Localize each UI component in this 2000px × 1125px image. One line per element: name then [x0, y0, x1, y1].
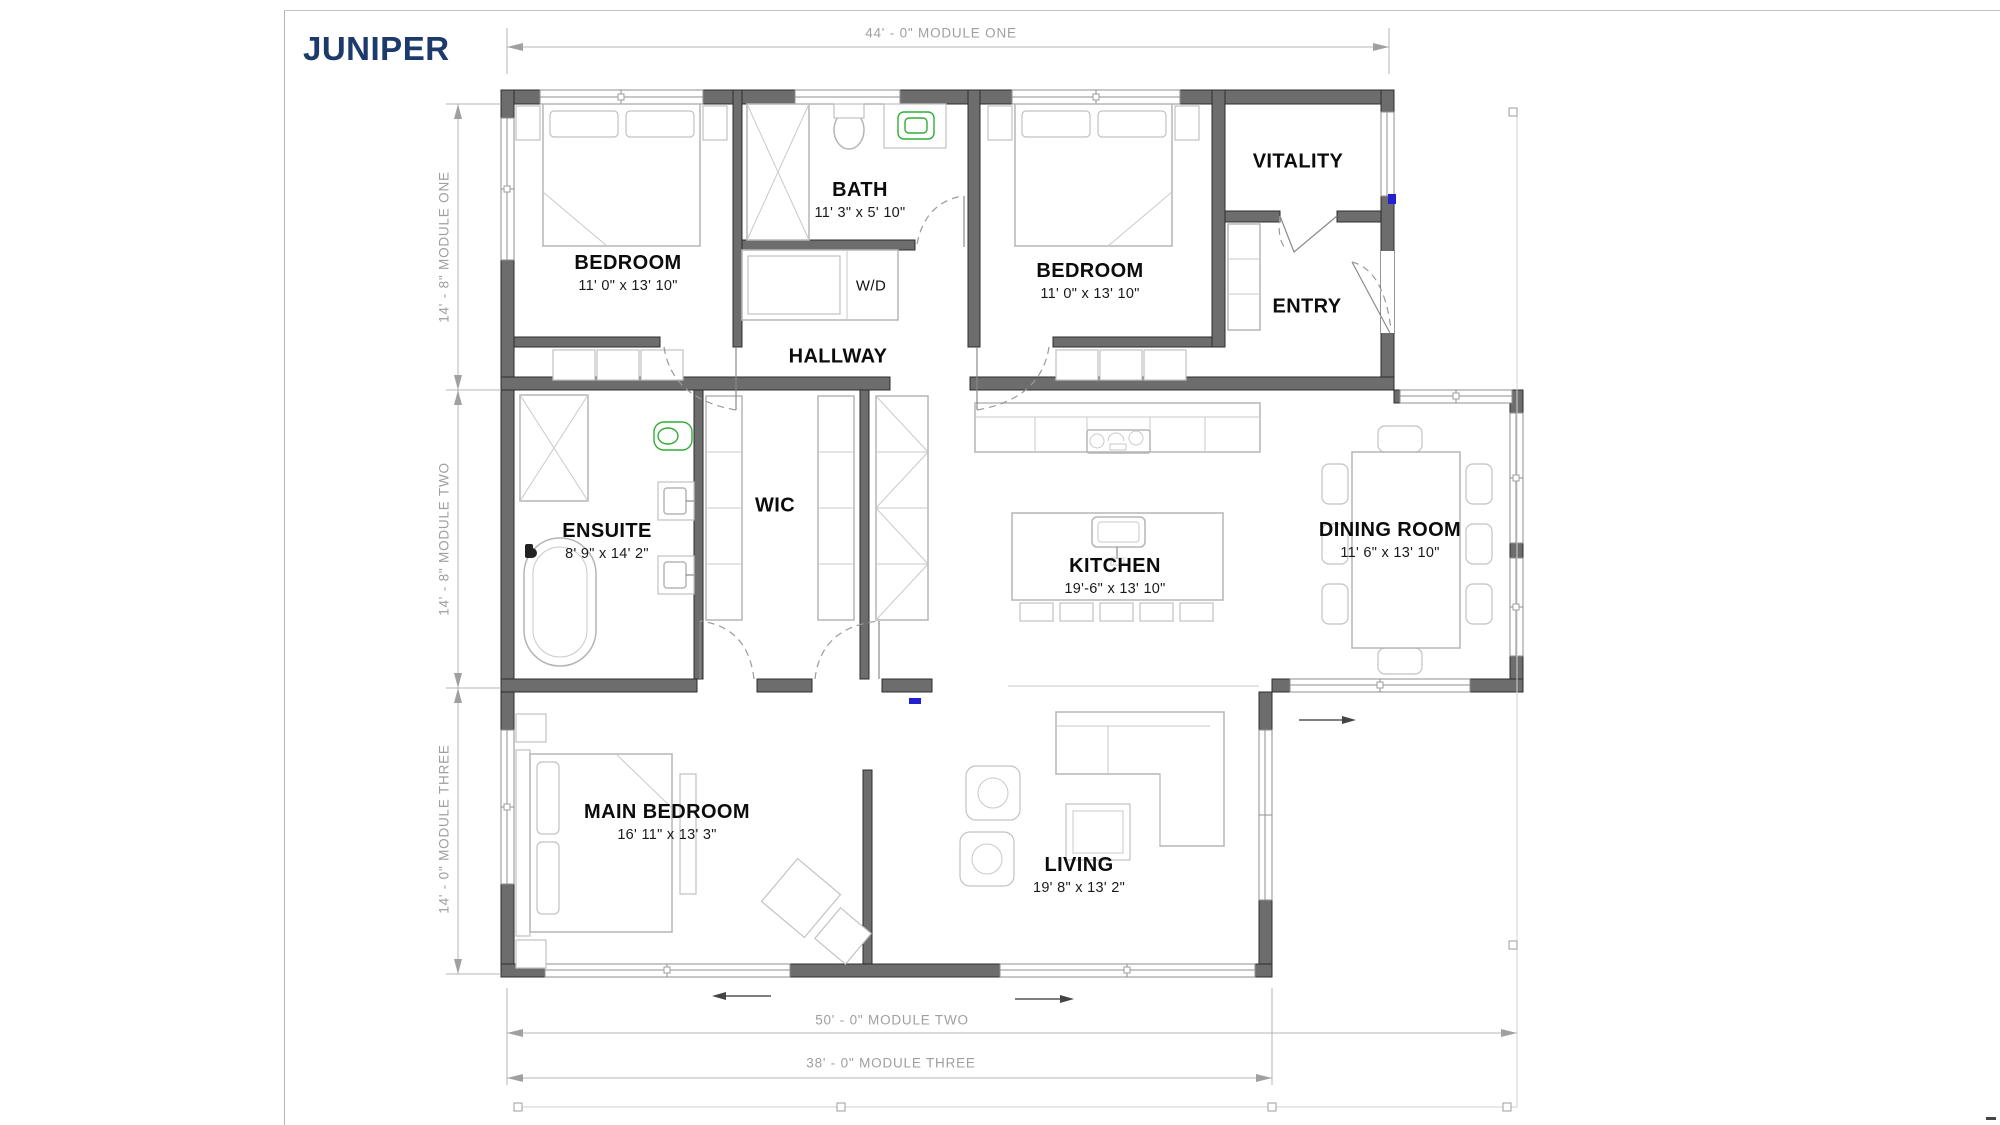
- room-label-dining: DINING ROOM 11' 6" x 13' 10": [1319, 519, 1461, 561]
- room-size: 8' 9" x 14' 2": [562, 546, 651, 562]
- room-name: VITALITY: [1253, 151, 1344, 174]
- room-name: MAIN BEDROOM: [584, 801, 750, 824]
- room-label-ensuite: ENSUITE 8' 9" x 14' 2": [562, 520, 651, 562]
- floor-plan-drawing: [0, 0, 2000, 1125]
- room-name: BATH: [814, 179, 905, 202]
- dimension-module-two-width: 50' - 0" MODULE TWO: [815, 1013, 969, 1028]
- room-size: 11' 0" x 13' 10": [574, 278, 681, 294]
- room-name: WIC: [755, 495, 795, 518]
- blue-marker: [1388, 194, 1396, 204]
- room-name: BEDROOM: [1036, 260, 1143, 283]
- room-label-kitchen: KITCHEN 19'-6" x 13' 10": [1064, 555, 1165, 597]
- corner-tick: [1986, 1117, 1996, 1120]
- blue-marker: [909, 698, 921, 704]
- room-name: BEDROOM: [574, 252, 681, 275]
- room-name: W/D: [856, 278, 886, 295]
- room-name: KITCHEN: [1064, 555, 1165, 578]
- room-label-bedroom-left: BEDROOM 11' 0" x 13' 10": [574, 252, 681, 294]
- room-label-wic: WIC: [755, 495, 795, 518]
- room-label-entry: ENTRY: [1272, 296, 1341, 319]
- room-label-bath: BATH 11' 3" x 5' 10": [814, 179, 905, 221]
- room-name: DINING ROOM: [1319, 519, 1461, 542]
- dimension-module-two-height: 14' - 8" MODULE TWO: [437, 462, 452, 616]
- room-name: ENTRY: [1272, 296, 1341, 319]
- room-size: 19'-6" x 13' 10": [1064, 581, 1165, 597]
- dimension-module-one-height: 14' - 8" MODULE ONE: [437, 171, 452, 323]
- room-size: 11' 3" x 5' 10": [814, 205, 905, 221]
- room-label-bedroom-right: BEDROOM 11' 0" x 13' 10": [1036, 260, 1143, 302]
- room-name: ENSUITE: [562, 520, 651, 543]
- room-name: HALLWAY: [789, 346, 888, 369]
- room-name: LIVING: [1033, 854, 1125, 877]
- floor-plan-page: JUNIPER: [0, 0, 2000, 1125]
- room-size: 11' 0" x 13' 10": [1036, 286, 1143, 302]
- room-label-living: LIVING 19' 8" x 13' 2": [1033, 854, 1125, 896]
- room-label-hallway: HALLWAY: [789, 346, 888, 369]
- dimension-module-three-height: 14' - 0" MODULE THREE: [437, 744, 452, 913]
- dimension-module-three-width: 38' - 0" MODULE THREE: [806, 1056, 975, 1071]
- room-label-laundry: W/D: [856, 278, 886, 295]
- room-size: 16' 11" x 13' 3": [584, 827, 750, 843]
- dimension-module-one-width: 44' - 0" MODULE ONE: [865, 26, 1017, 41]
- room-size: 19' 8" x 13' 2": [1033, 880, 1125, 896]
- room-size: 11' 6" x 13' 10": [1319, 545, 1461, 561]
- room-label-main-bedroom: MAIN BEDROOM 16' 11" x 13' 3": [584, 801, 750, 843]
- room-label-vitality: VITALITY: [1253, 151, 1344, 174]
